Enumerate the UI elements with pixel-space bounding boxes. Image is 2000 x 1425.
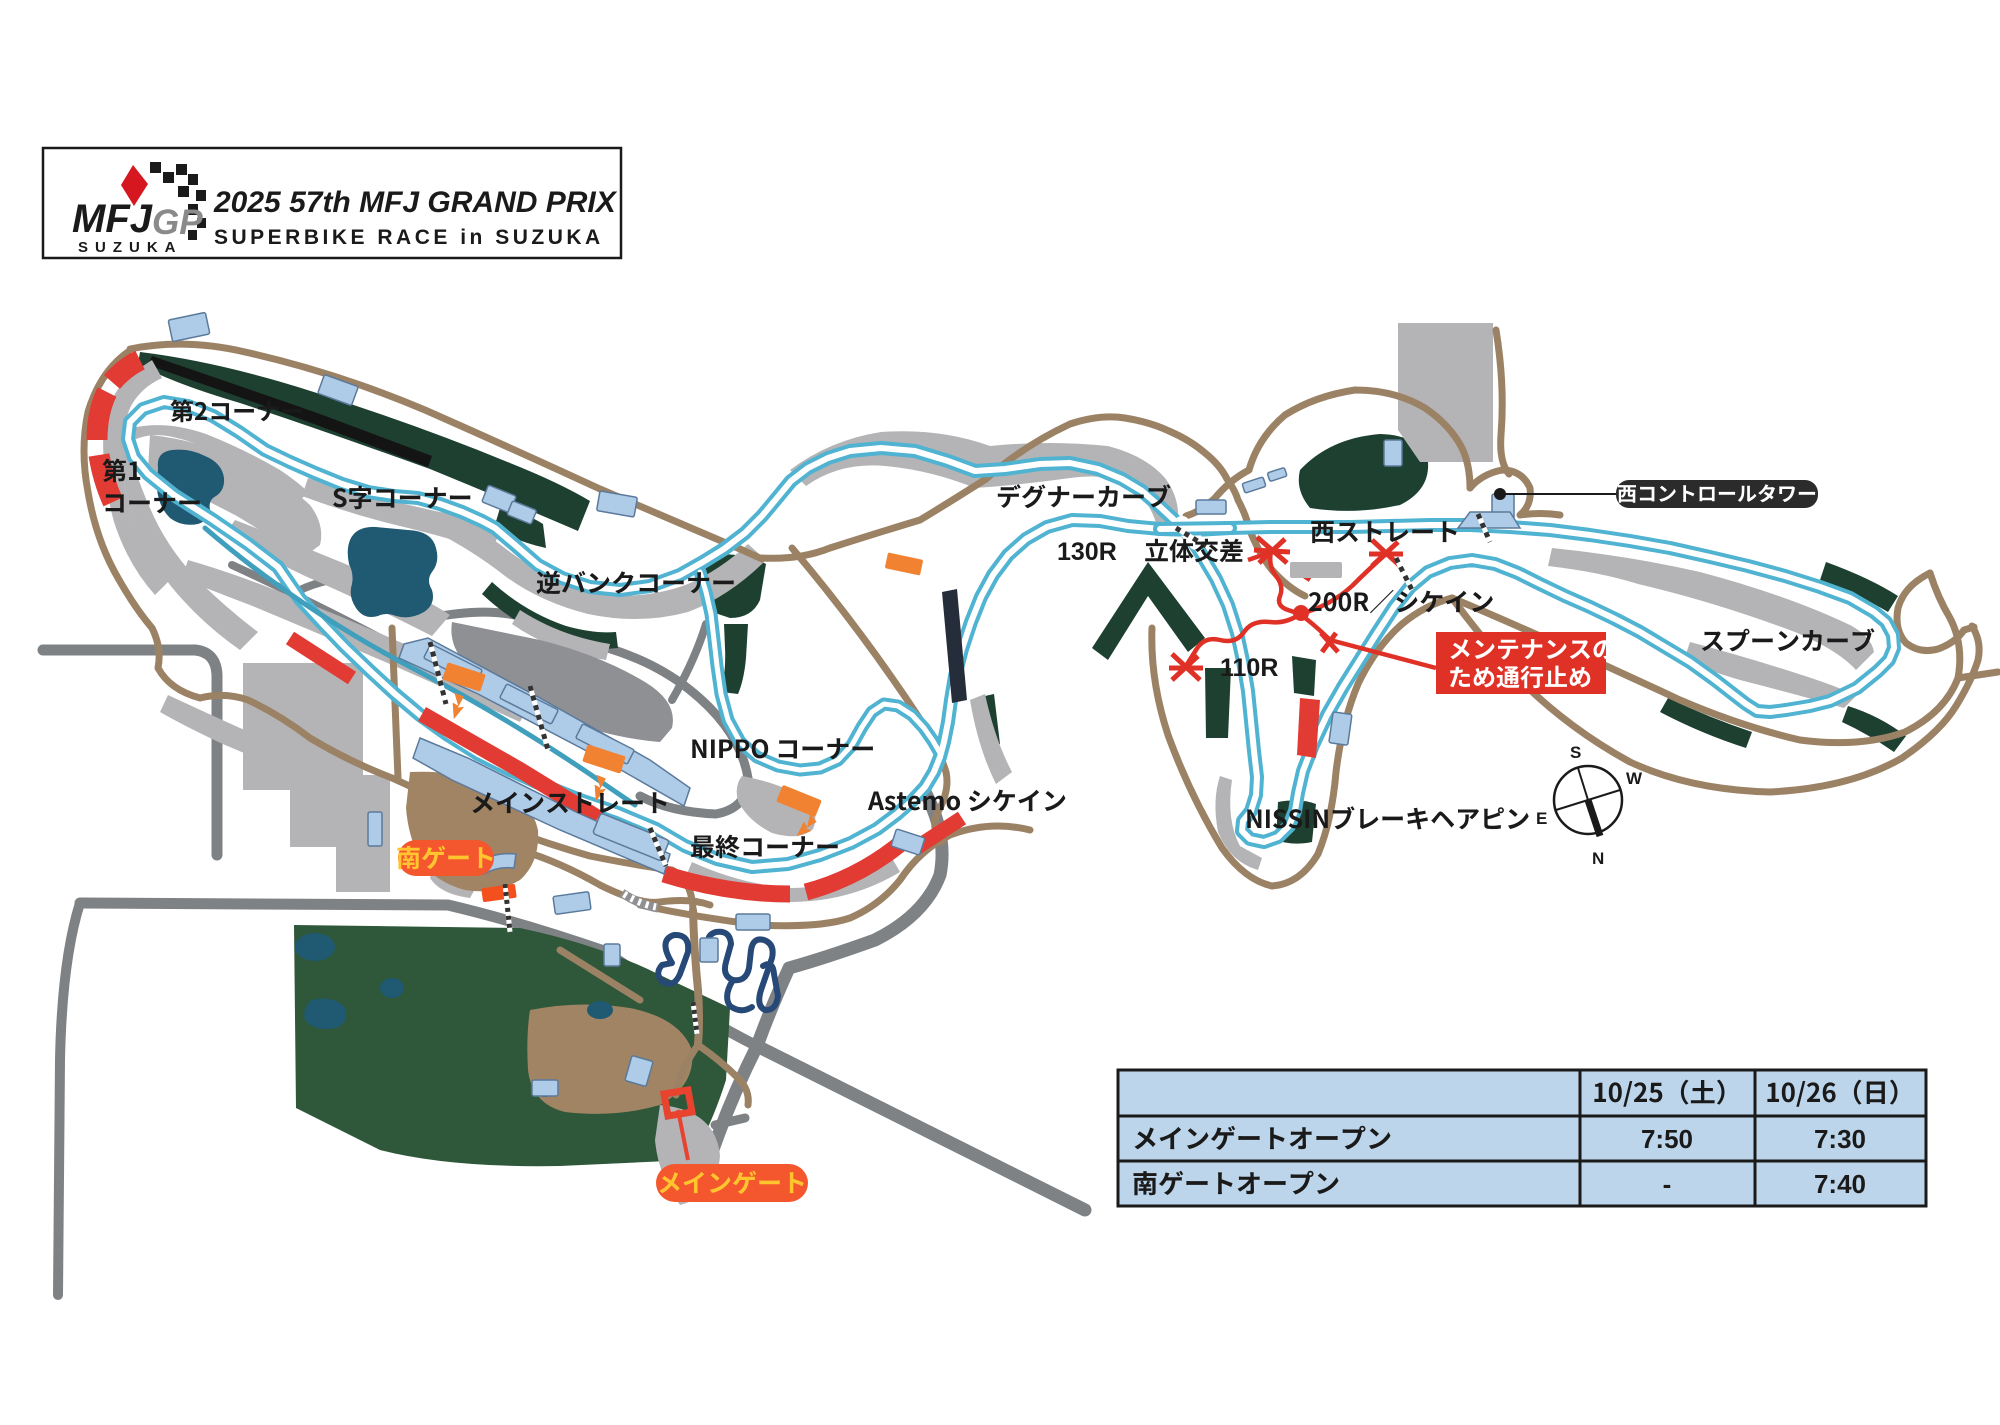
svg-text:2025 57th MFJ GRAND PRIX: 2025 57th MFJ GRAND PRIX: [213, 186, 618, 219]
svg-text:7:50: 7:50: [1641, 1124, 1693, 1154]
svg-text:S: S: [1570, 743, 1581, 762]
svg-text:110R: 110R: [1220, 654, 1278, 682]
svg-text:7:40: 7:40: [1814, 1169, 1866, 1199]
svg-text:N: N: [1592, 849, 1604, 868]
svg-text:SUZUKA: SUZUKA: [78, 239, 183, 256]
svg-text:-: -: [1663, 1169, 1672, 1199]
svg-text:SUPERBIKE RACE in SUZUKA: SUPERBIKE RACE in SUZUKA: [214, 226, 604, 249]
svg-text:130R: 130R: [1057, 538, 1117, 566]
svg-text:W: W: [1626, 769, 1643, 788]
svg-text:MFJ: MFJ: [72, 197, 153, 241]
svg-text:E: E: [1536, 809, 1547, 828]
svg-text:GP: GP: [152, 203, 203, 242]
svg-text:7:30: 7:30: [1814, 1124, 1866, 1154]
